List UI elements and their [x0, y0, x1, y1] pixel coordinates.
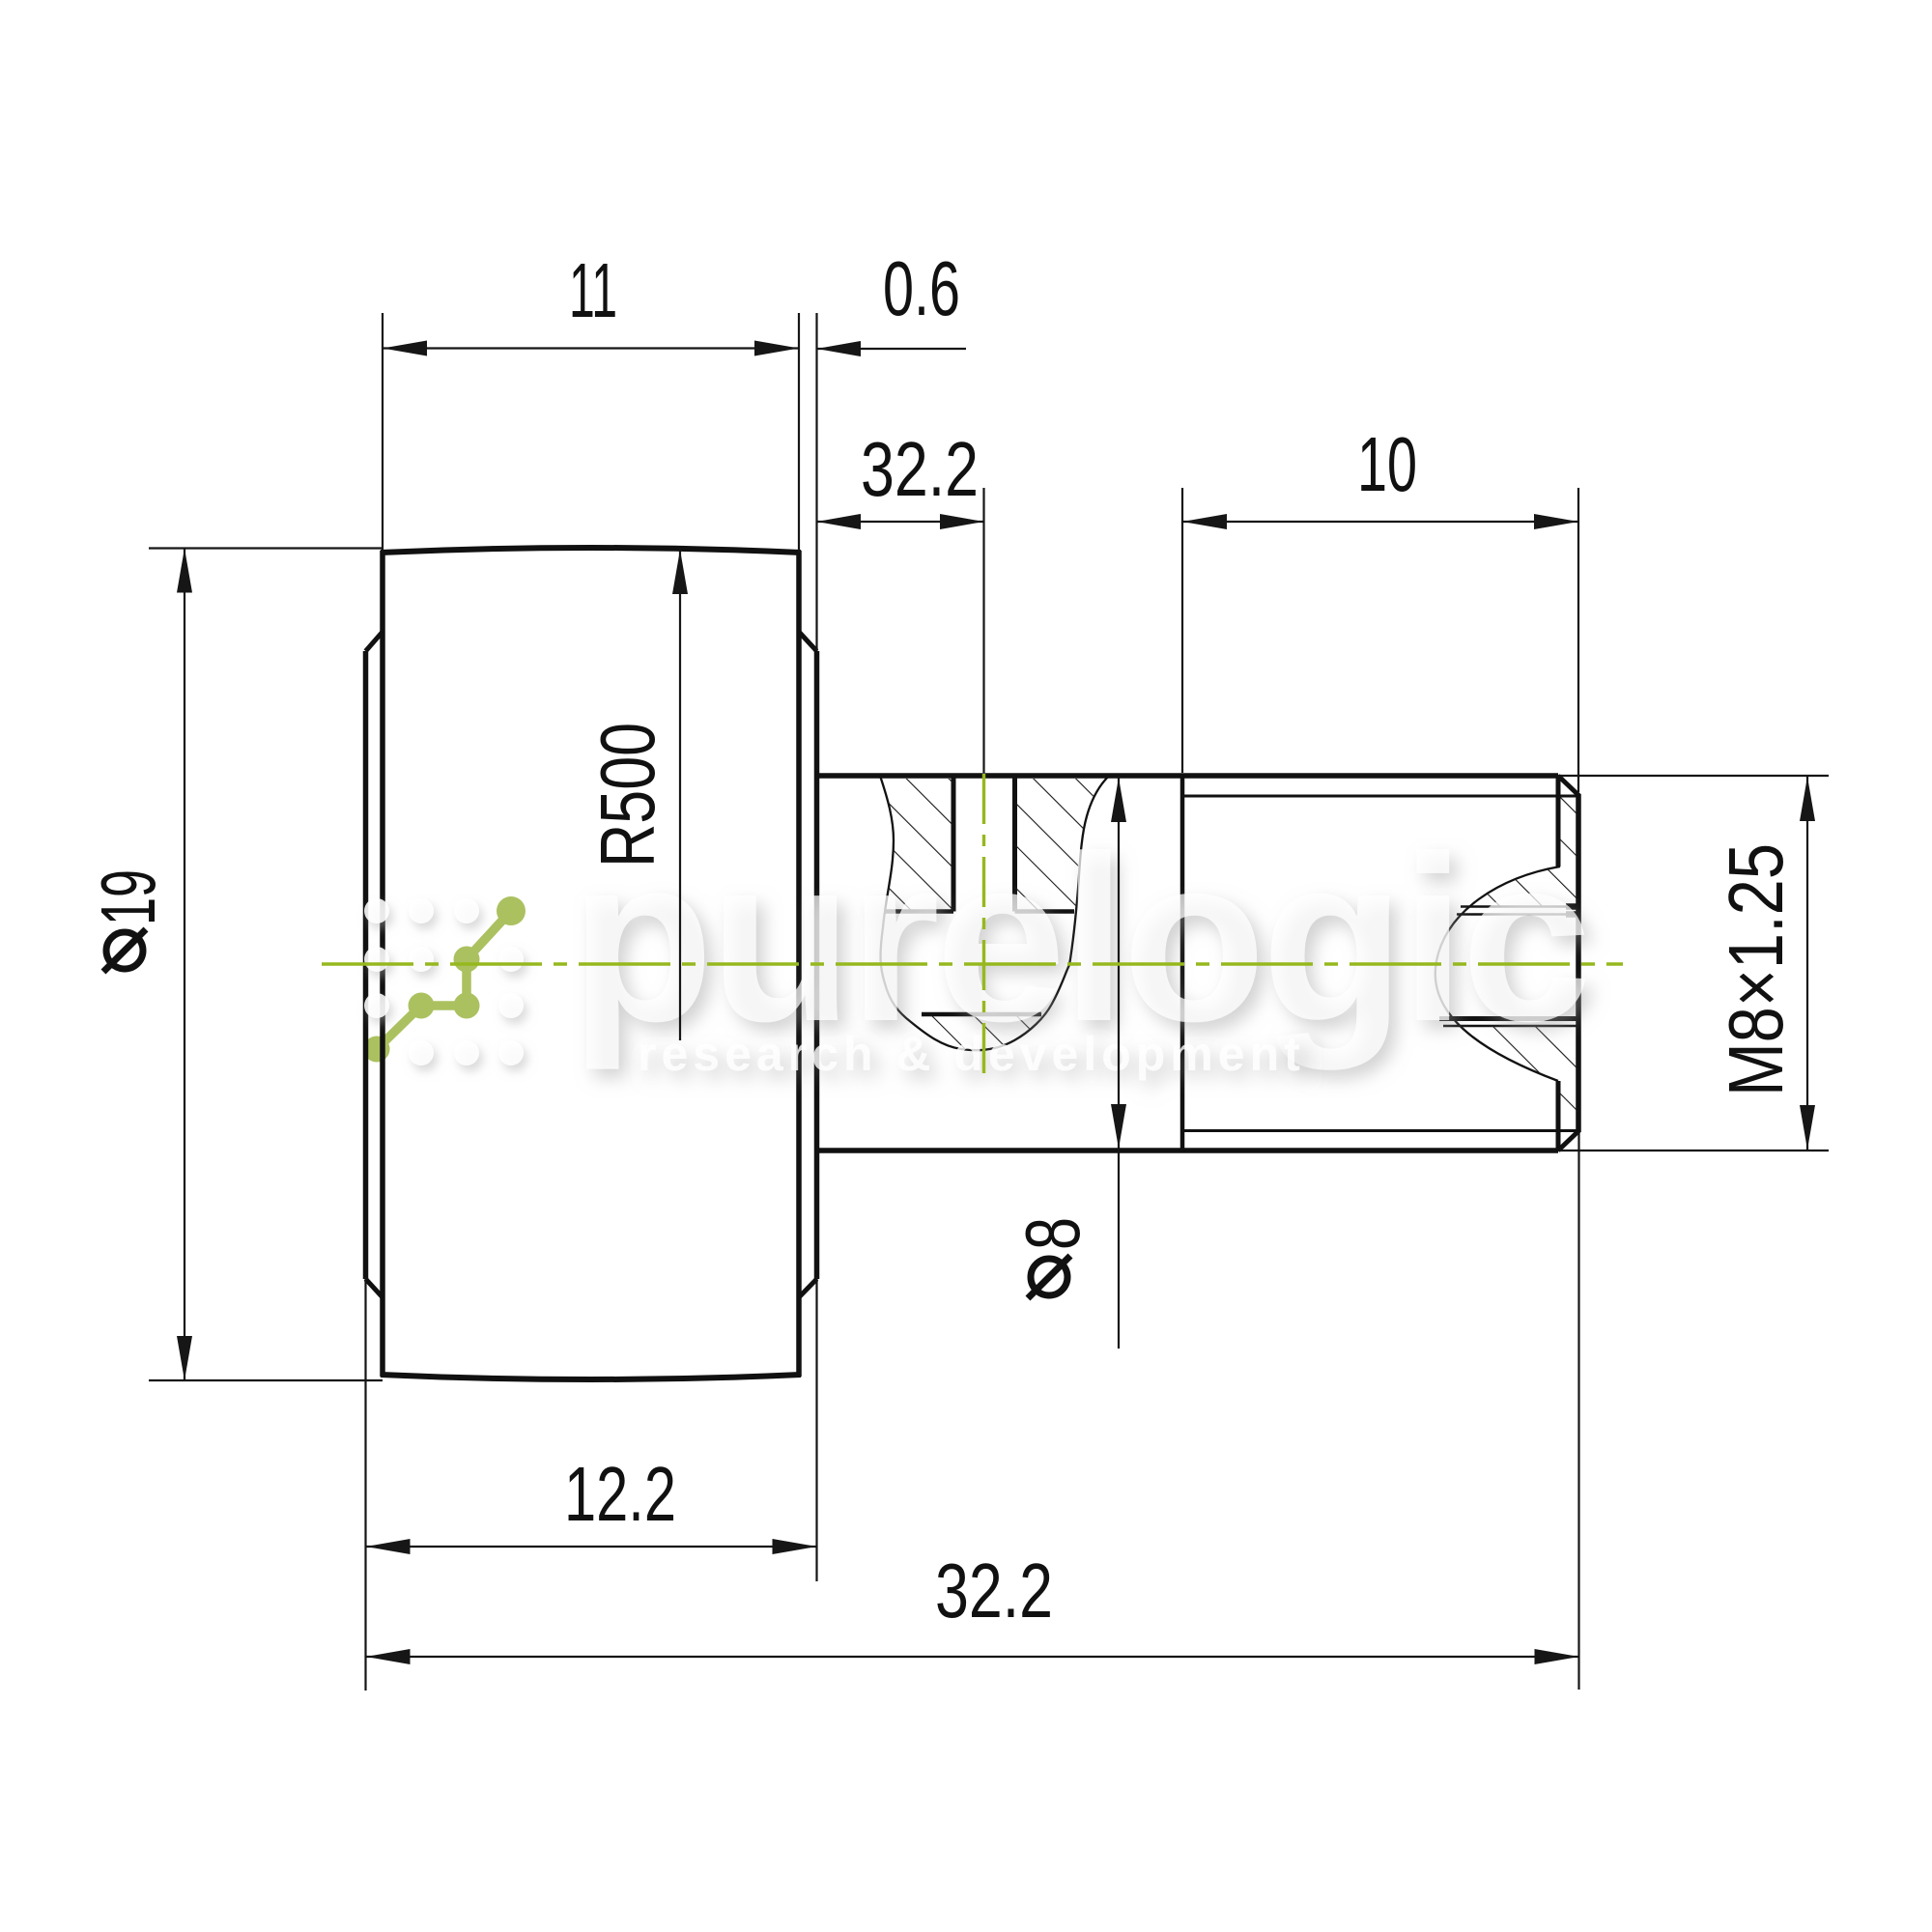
svg-text:0.6: 0.6: [883, 245, 960, 331]
svg-text:32.2: 32.2: [861, 426, 979, 512]
svg-text:11: 11: [569, 247, 617, 333]
svg-text:19: 19: [85, 869, 171, 925]
svg-text:32.2: 32.2: [935, 1548, 1053, 1634]
svg-text:12.2: 12.2: [564, 1451, 676, 1537]
svg-text:M8×1.25: M8×1.25: [1713, 843, 1799, 1096]
svg-text:R500: R500: [584, 723, 670, 867]
svg-text:10: 10: [1357, 421, 1417, 507]
svg-text:research & development: research & development: [638, 1027, 1305, 1081]
svg-text:8: 8: [1009, 1217, 1095, 1250]
